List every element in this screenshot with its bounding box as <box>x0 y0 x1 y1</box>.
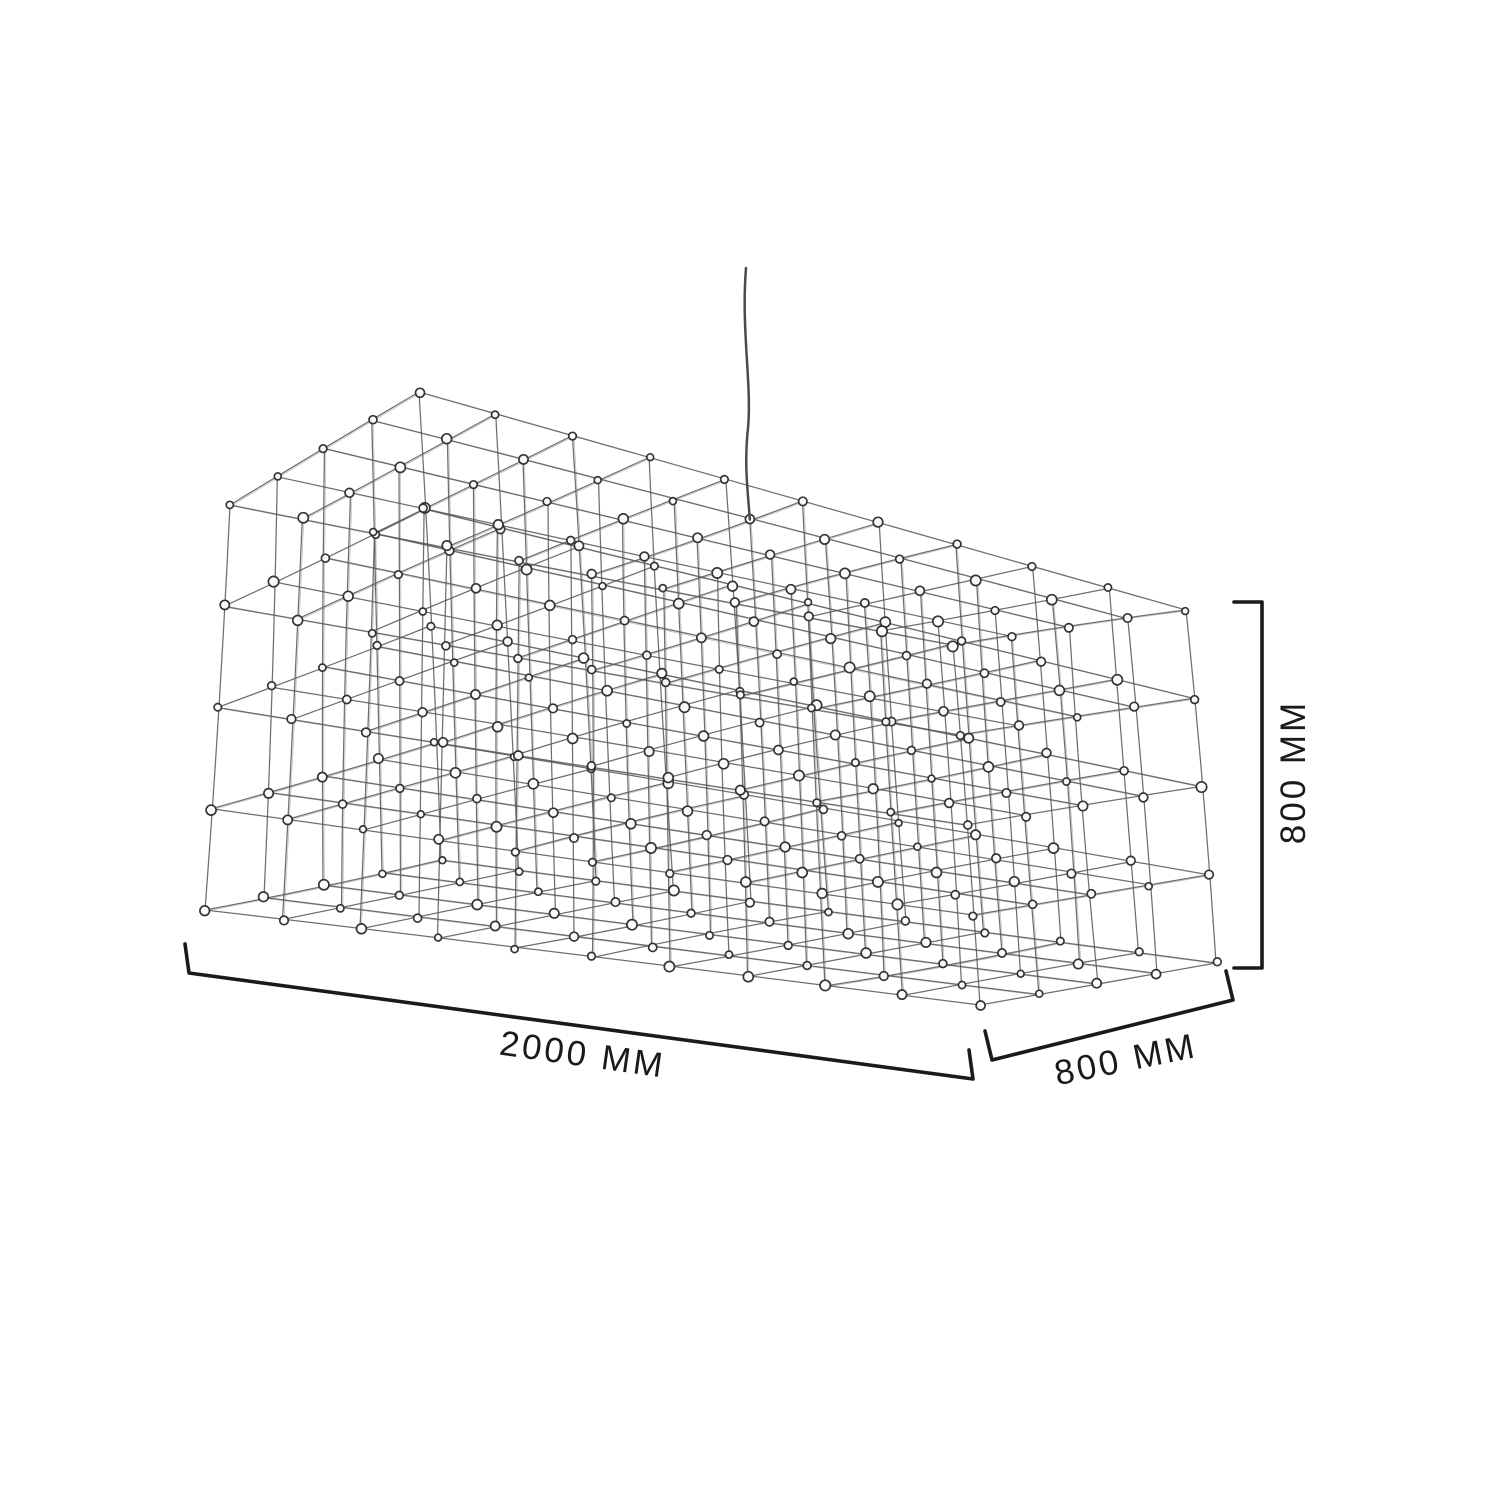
led-node <box>997 698 1005 706</box>
led-node <box>491 921 500 930</box>
led-node <box>611 898 619 906</box>
led-node <box>319 445 327 453</box>
led-node <box>647 454 654 461</box>
led-node <box>774 746 783 755</box>
diagram-page: 2000 MM 800 MM 800 MM <box>0 0 1500 1500</box>
led-node <box>756 719 764 727</box>
led-node <box>588 666 596 674</box>
led-node <box>1028 563 1036 571</box>
led-node <box>568 734 578 744</box>
led-node <box>549 808 558 817</box>
led-node <box>843 929 853 939</box>
led-node <box>569 432 577 440</box>
led-node <box>948 641 958 651</box>
led-node <box>456 878 463 885</box>
led-node <box>1047 595 1057 605</box>
led-node <box>370 529 377 536</box>
led-node <box>731 598 740 607</box>
led-node <box>525 674 532 681</box>
led-node <box>379 870 386 877</box>
led-node <box>450 768 460 778</box>
led-node <box>373 642 381 650</box>
led-node <box>514 655 522 663</box>
led-node <box>861 599 869 607</box>
led-node <box>723 856 732 865</box>
led-node <box>206 805 216 815</box>
led-node <box>808 704 815 711</box>
led-node <box>621 617 629 625</box>
led-node <box>439 738 448 747</box>
led-node <box>657 669 666 678</box>
led-node <box>799 497 807 505</box>
led-node <box>550 909 559 918</box>
led-node <box>820 535 829 544</box>
led-node <box>868 784 878 794</box>
led-node <box>200 906 210 916</box>
led-node <box>369 416 377 424</box>
led-node <box>588 952 596 960</box>
led-node <box>662 678 670 686</box>
led-node <box>492 620 502 630</box>
led-node <box>971 830 980 839</box>
led-node <box>951 891 959 899</box>
led-node <box>945 799 954 808</box>
led-node <box>283 815 292 824</box>
led-node <box>587 762 595 770</box>
led-node <box>357 924 367 934</box>
led-node <box>683 806 693 816</box>
led-node <box>998 949 1006 957</box>
led-node <box>608 794 615 801</box>
led-node <box>856 855 864 863</box>
led-node <box>716 666 723 673</box>
led-node <box>969 912 977 920</box>
led-node <box>1029 900 1037 908</box>
led-node <box>1182 608 1189 615</box>
led-node <box>519 455 528 464</box>
led-node <box>1112 675 1122 685</box>
led-node <box>699 731 709 741</box>
led-node <box>287 715 296 724</box>
led-node <box>1036 990 1043 997</box>
led-node <box>1120 767 1128 775</box>
led-node <box>865 691 875 701</box>
led-node <box>1022 813 1030 821</box>
dimension-height-label: 800 MM <box>1274 700 1313 844</box>
led-node <box>1135 948 1143 956</box>
led-node <box>896 555 904 563</box>
led-node <box>651 562 658 569</box>
led-node <box>343 695 351 703</box>
led-node <box>1130 702 1139 711</box>
led-node <box>515 557 523 565</box>
led-node <box>599 583 606 590</box>
led-node <box>1074 959 1083 968</box>
led-node <box>268 576 278 586</box>
led-node <box>1205 870 1214 879</box>
led-node <box>345 488 354 497</box>
led-node <box>957 732 965 740</box>
led-node <box>803 962 811 970</box>
led-node <box>226 501 233 508</box>
led-node <box>664 962 674 972</box>
led-node <box>442 642 450 650</box>
led-node <box>971 575 981 585</box>
dimension-length: 2000 MM <box>185 944 973 1086</box>
led-node <box>395 571 403 579</box>
led-node <box>589 859 596 866</box>
led-node <box>958 637 966 645</box>
led-node <box>939 707 948 716</box>
led-node <box>268 682 276 690</box>
led-node <box>274 473 281 480</box>
led-node <box>1063 778 1070 785</box>
led-node <box>293 616 303 626</box>
led-node <box>790 678 797 685</box>
led-node <box>321 554 329 562</box>
led-node <box>725 951 732 958</box>
led-node <box>396 785 404 793</box>
led-node <box>1145 883 1152 890</box>
led-node <box>1078 801 1087 810</box>
led-node <box>659 585 666 592</box>
led-node <box>663 773 673 783</box>
led-node <box>414 914 422 922</box>
led-node <box>395 891 403 899</box>
led-node <box>1067 869 1076 878</box>
led-node <box>1104 584 1111 591</box>
led-node <box>1074 714 1081 721</box>
led-node <box>374 754 383 763</box>
led-node <box>264 789 273 798</box>
led-node <box>805 612 814 621</box>
led-node <box>991 607 999 615</box>
led-node <box>674 599 684 609</box>
led-node <box>786 585 795 594</box>
led-node <box>882 718 890 726</box>
led-node <box>511 946 518 953</box>
led-node <box>923 679 932 688</box>
led-node <box>512 848 520 856</box>
led-node <box>470 481 478 489</box>
led-node <box>1042 749 1051 758</box>
led-node <box>298 513 308 523</box>
led-node <box>773 650 781 658</box>
led-node <box>817 889 827 899</box>
led-node <box>1196 782 1206 792</box>
led-node <box>765 918 773 926</box>
led-node <box>649 943 657 951</box>
led-node <box>644 747 653 756</box>
dimension-height-line <box>1234 602 1262 968</box>
led-node <box>908 747 916 755</box>
led-node <box>434 835 443 844</box>
led-node <box>953 540 961 548</box>
led-node <box>964 821 972 829</box>
led-node <box>416 388 425 397</box>
led-node <box>1015 721 1024 730</box>
led-node <box>1213 958 1221 966</box>
led-node <box>1002 789 1010 797</box>
led-node <box>1037 657 1046 666</box>
led-node <box>643 651 651 659</box>
led-node <box>983 762 993 772</box>
led-node <box>820 980 830 990</box>
led-node <box>627 920 637 930</box>
led-node <box>797 868 807 878</box>
led-node <box>362 728 371 737</box>
led-node <box>897 990 906 999</box>
led-node <box>587 570 596 579</box>
led-node <box>570 834 578 842</box>
led-node <box>766 550 775 559</box>
dimension-depth: 800 MM <box>985 971 1233 1093</box>
led-node <box>895 820 902 827</box>
led-node <box>549 704 558 713</box>
dimension-depth-label: 800 MM <box>1051 1026 1200 1093</box>
led-node <box>838 832 846 840</box>
led-node <box>494 520 504 530</box>
led-node <box>921 938 930 947</box>
led-node <box>669 498 676 505</box>
suspension-cable <box>745 268 750 520</box>
led-node <box>567 537 575 545</box>
led-node <box>1065 624 1073 632</box>
led-node <box>1152 970 1161 979</box>
wireframe-lattice <box>200 388 1221 1010</box>
led-node <box>318 773 327 782</box>
led-node <box>939 960 947 968</box>
led-node <box>746 898 755 907</box>
led-node <box>928 775 935 782</box>
led-node <box>626 819 636 829</box>
led-node <box>360 826 367 833</box>
led-node <box>427 623 434 630</box>
led-node <box>592 877 600 885</box>
led-node <box>623 720 630 727</box>
led-node <box>880 972 889 981</box>
led-node <box>493 722 503 732</box>
dimension-drawing: 2000 MM 800 MM 800 MM <box>0 0 1500 1500</box>
led-node <box>395 462 405 472</box>
led-node <box>892 899 902 909</box>
led-node <box>992 854 1001 863</box>
led-node <box>1127 856 1136 865</box>
led-node <box>522 565 532 575</box>
led-node <box>451 659 458 666</box>
led-node <box>220 600 229 609</box>
led-node <box>442 541 451 550</box>
led-node <box>780 842 790 852</box>
led-node <box>439 857 446 864</box>
led-node <box>901 917 909 925</box>
led-node <box>903 652 911 660</box>
led-node <box>579 653 589 663</box>
led-node <box>473 795 481 803</box>
led-node <box>736 786 745 795</box>
led-node <box>1010 877 1020 887</box>
led-node <box>214 704 221 711</box>
led-node <box>640 552 649 561</box>
led-node <box>844 662 854 672</box>
led-node <box>543 498 551 506</box>
led-node <box>503 637 512 646</box>
led-node <box>679 702 689 712</box>
led-node <box>419 504 427 512</box>
led-node <box>339 800 347 808</box>
led-node <box>570 932 579 941</box>
led-node <box>431 739 438 746</box>
led-node <box>728 581 738 591</box>
led-node <box>259 892 269 902</box>
led-node <box>472 584 481 593</box>
led-node <box>1092 979 1101 988</box>
led-node <box>852 759 859 766</box>
led-node <box>435 934 442 941</box>
led-node <box>687 909 695 917</box>
led-node <box>741 877 751 887</box>
led-node <box>825 909 832 916</box>
led-node <box>491 822 501 832</box>
led-node <box>873 877 883 887</box>
dimension-height: 800 MM <box>1234 602 1313 968</box>
led-node <box>618 514 628 524</box>
led-node <box>419 608 426 615</box>
led-node <box>831 730 840 739</box>
led-node <box>516 868 523 875</box>
led-node <box>1055 686 1065 696</box>
led-node <box>749 617 758 626</box>
led-node <box>418 708 427 717</box>
led-node <box>702 831 711 840</box>
led-node <box>369 630 376 637</box>
led-node <box>1123 614 1131 622</box>
led-node <box>719 759 729 769</box>
led-node <box>1008 633 1016 641</box>
led-node <box>1087 890 1095 898</box>
led-node <box>337 905 344 912</box>
led-node <box>813 799 820 806</box>
led-node <box>280 916 289 925</box>
led-node <box>958 981 965 988</box>
led-node <box>873 517 883 527</box>
led-node <box>887 809 894 816</box>
led-node <box>1049 843 1059 853</box>
led-node <box>646 843 656 853</box>
led-node <box>492 411 499 418</box>
led-node <box>712 568 722 578</box>
led-node <box>319 880 329 890</box>
led-node <box>933 616 943 626</box>
led-node <box>535 888 542 895</box>
led-node <box>980 669 988 677</box>
led-node <box>794 771 804 781</box>
led-node <box>737 691 744 698</box>
led-node <box>442 434 452 444</box>
led-node <box>602 686 612 696</box>
led-node <box>697 633 706 642</box>
led-node <box>1191 696 1199 704</box>
led-node <box>1139 793 1148 802</box>
led-node <box>826 634 836 644</box>
lattice-wires <box>205 392 1217 1005</box>
led-node <box>1057 937 1064 944</box>
led-node <box>915 586 924 595</box>
led-node <box>861 948 871 958</box>
led-node <box>528 779 538 789</box>
led-node <box>319 664 326 671</box>
led-node <box>760 817 768 825</box>
led-node <box>669 885 679 895</box>
led-node <box>805 599 812 606</box>
led-node <box>964 734 973 743</box>
led-node <box>743 972 753 982</box>
led-node <box>343 591 353 601</box>
led-node <box>721 476 729 484</box>
led-node <box>693 533 702 542</box>
led-node <box>472 900 482 910</box>
led-node <box>569 636 577 644</box>
led-node <box>1017 970 1024 977</box>
led-node <box>840 568 850 578</box>
led-node <box>914 843 921 850</box>
led-node <box>395 677 403 685</box>
led-node <box>594 477 601 484</box>
led-node <box>976 1001 985 1010</box>
led-node <box>514 751 523 760</box>
led-node <box>417 811 424 818</box>
led-node <box>706 932 713 939</box>
led-node <box>981 929 989 937</box>
led-node <box>666 870 674 878</box>
led-node <box>784 942 792 950</box>
led-node <box>877 626 887 636</box>
led-node <box>932 868 942 878</box>
led-node <box>819 805 827 813</box>
led-node <box>545 601 555 611</box>
led-node <box>471 690 480 699</box>
led-node <box>574 541 583 550</box>
